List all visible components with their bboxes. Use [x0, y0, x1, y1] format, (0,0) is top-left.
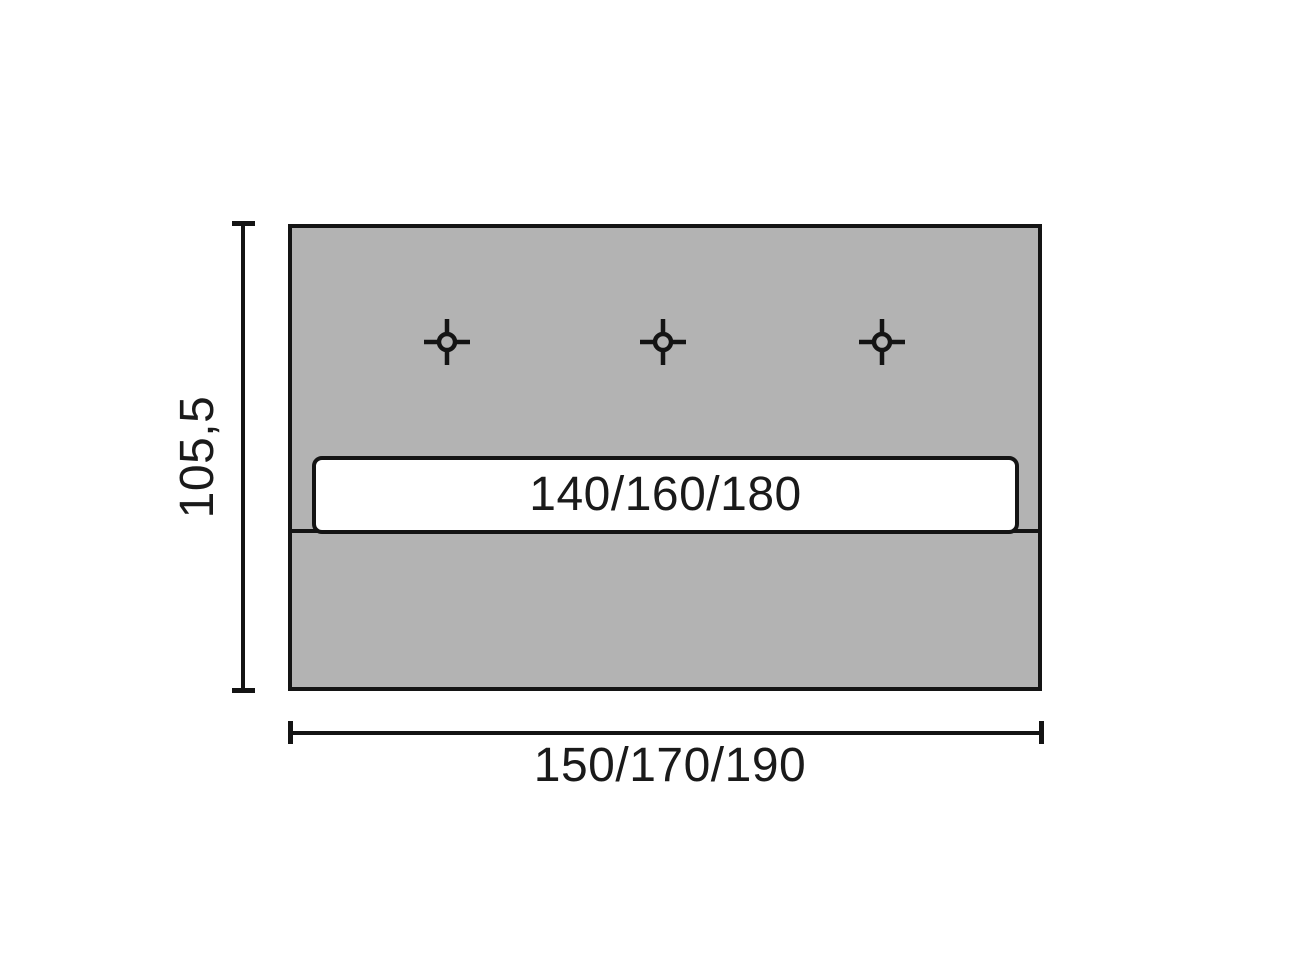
width-dimension-line: [288, 731, 1044, 735]
diagram-canvas: 105,5 140/160/180 150/170/190: [0, 0, 1300, 975]
crosshair-target-icon: [639, 318, 687, 366]
size-bar-label: 140/160/180: [529, 471, 801, 519]
height-dimension-tick-bottom: [232, 688, 255, 693]
crosshair-target-icon: [423, 318, 471, 366]
width-dimension-label: 150/170/190: [420, 742, 920, 790]
width-dimension-tick-right: [1039, 721, 1044, 744]
size-options-bar: 140/160/180: [312, 456, 1019, 534]
width-dimension-tick-left: [288, 721, 293, 744]
height-dimension-line: [241, 222, 245, 692]
height-dimension-label: 105,5: [174, 347, 226, 567]
height-dimension-tick-top: [232, 221, 255, 226]
crosshair-target-icon: [858, 318, 906, 366]
